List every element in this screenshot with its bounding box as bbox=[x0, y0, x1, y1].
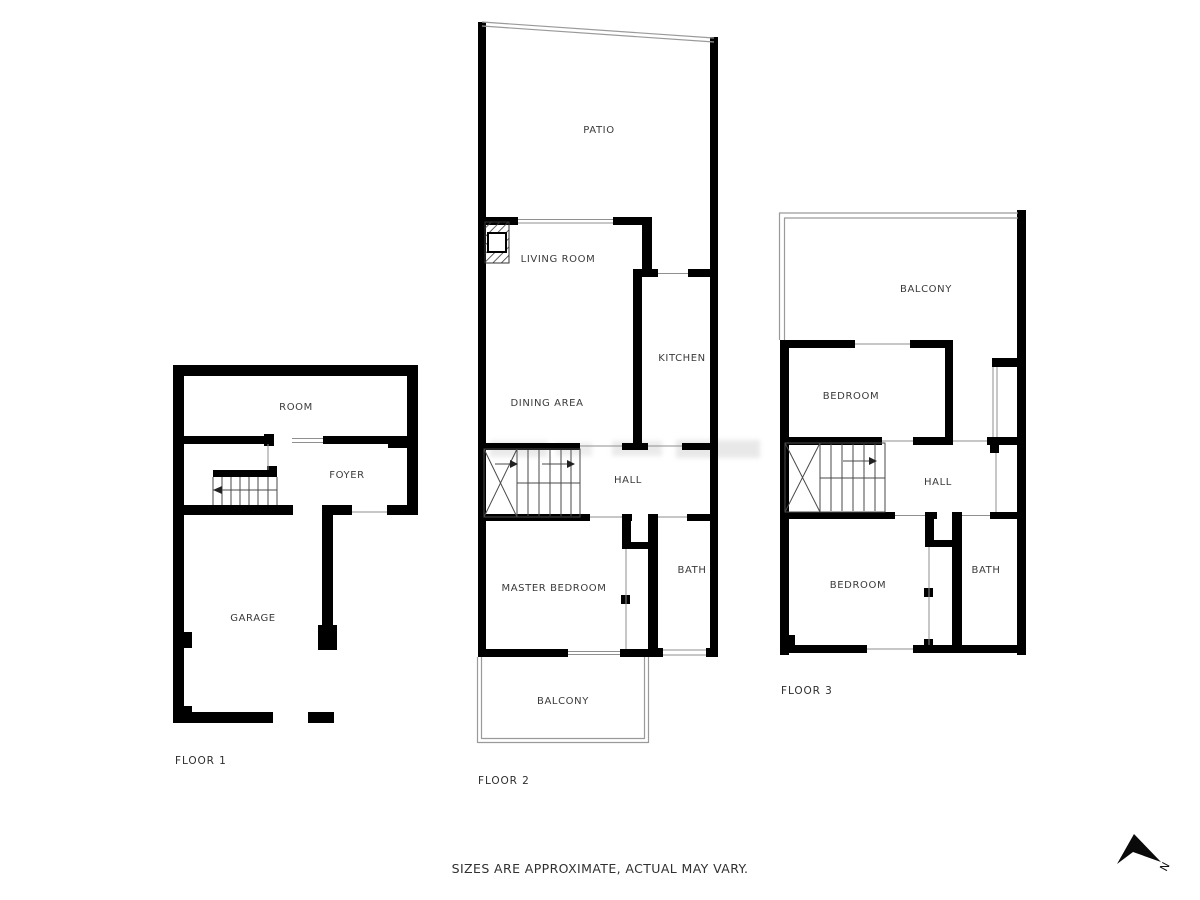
room-label-bedroom-lower: BEDROOM bbox=[830, 580, 886, 591]
stair-direction-arrow bbox=[213, 486, 222, 494]
room-label-hall: HALL bbox=[614, 475, 642, 486]
floor1-openings bbox=[268, 439, 387, 513]
floor2-walls bbox=[478, 22, 718, 657]
floorplan-page: ROOM FOYER GARAGE FLOOR 1 bbox=[0, 0, 1200, 900]
floor2-label: FLOOR 2 bbox=[478, 775, 530, 787]
north-arrow: N bbox=[1117, 834, 1172, 873]
floor1-label: FLOOR 1 bbox=[175, 755, 227, 767]
floor3-walls bbox=[780, 210, 1026, 655]
floorplan-canvas: ROOM FOYER GARAGE FLOOR 1 bbox=[0, 0, 1200, 900]
stair-direction-arrow bbox=[869, 457, 877, 465]
room-label-dining-area: DINING AREA bbox=[510, 398, 583, 409]
room-label-balcony-f3: BALCONY bbox=[900, 284, 952, 295]
floor2-plan: PATIO LIVING ROOM KITCHEN DINING AREA HA… bbox=[478, 22, 719, 787]
room-label-kitchen: KITCHEN bbox=[658, 353, 706, 364]
fireplace bbox=[485, 222, 509, 263]
room-label-room: ROOM bbox=[279, 402, 313, 413]
room-label-patio: PATIO bbox=[583, 125, 614, 136]
room-label-living-room: LIVING ROOM bbox=[521, 254, 596, 265]
north-arrow-icon bbox=[1117, 834, 1161, 864]
north-arrow-label: N bbox=[1156, 860, 1171, 873]
room-label-bath-f3: BATH bbox=[972, 565, 1001, 576]
room-label-bedroom-upper: BEDROOM bbox=[823, 391, 879, 402]
floor1-stairs bbox=[213, 477, 277, 505]
floor1-plan: ROOM FOYER GARAGE FLOOR 1 bbox=[173, 365, 418, 767]
floor2-stairs bbox=[484, 449, 580, 517]
room-label-garage: GARAGE bbox=[230, 613, 275, 624]
floor2-openings bbox=[482, 22, 714, 655]
floor3-openings bbox=[855, 344, 997, 649]
floor3-plan: BALCONY BEDROOM HALL BEDROOM BATH FLOOR … bbox=[779, 210, 1026, 697]
floor3-label: FLOOR 3 bbox=[781, 685, 833, 697]
disclaimer-text: SIZES ARE APPROXIMATE, ACTUAL MAY VARY. bbox=[452, 861, 749, 876]
floor3-stairs bbox=[785, 443, 885, 512]
room-label-foyer: FOYER bbox=[329, 470, 364, 481]
room-label-bath: BATH bbox=[678, 565, 707, 576]
room-label-hall-f3: HALL bbox=[924, 477, 952, 488]
room-label-balcony: BALCONY bbox=[537, 696, 589, 707]
floor1-walls bbox=[173, 365, 418, 723]
floor3-balcony-rail bbox=[779, 213, 1018, 340]
room-label-master-bedroom: MASTER BEDROOM bbox=[502, 583, 607, 594]
